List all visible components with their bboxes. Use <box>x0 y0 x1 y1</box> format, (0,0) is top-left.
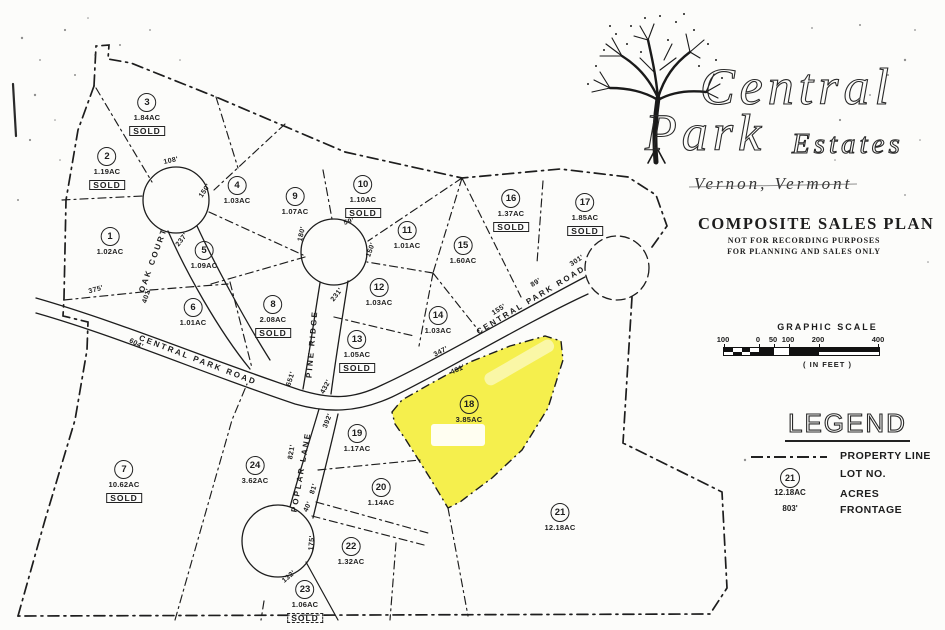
lot-acres: 1.10AC <box>345 196 381 204</box>
lot-number: 1 <box>100 227 119 246</box>
legend-label: PROPERTY LINE <box>840 450 931 462</box>
lot-acres: 3.62AC <box>242 477 269 485</box>
lot-number: 22 <box>341 537 360 556</box>
lot-sold-tag: SOLD <box>345 208 381 219</box>
scale-tick: 0 <box>756 335 760 344</box>
lot-label: 8 2.08AC SOLD <box>255 295 291 340</box>
lot-label: 1 1.02AC <box>97 227 124 256</box>
plan-title-block: COMPOSITE SALES PLAN NOT FOR RECORDING P… <box>698 214 910 256</box>
lot-number: 20 <box>371 478 390 497</box>
property-line-symbol <box>751 456 827 458</box>
lot-number: 3 <box>138 93 157 112</box>
lot-number: 23 <box>296 580 315 599</box>
lot-acres: 1.19AC <box>89 168 125 176</box>
brand-word-estates: Estates <box>792 128 904 161</box>
lot-acres: 1.03AC <box>224 197 251 205</box>
lot-number: 15 <box>453 236 472 255</box>
lot-label: 10 1.10AC SOLD <box>345 175 381 220</box>
lot-label: 9 1.07AC <box>282 187 309 216</box>
lot-lines <box>62 88 543 620</box>
lot-acres: 1.17AC <box>344 445 371 453</box>
central-park-road-culdesac <box>585 236 649 300</box>
lot-acres: 1.05AC <box>339 351 375 359</box>
lot-number: 16 <box>502 189 521 208</box>
lot-number: 10 <box>354 175 373 194</box>
plan-note-1: NOT FOR RECORDING PURPOSES <box>698 236 910 245</box>
scale-bar <box>723 347 880 356</box>
lot-acres: 1.07AC <box>282 208 309 216</box>
lot-sold-tag: SOLD <box>106 493 142 504</box>
lot-label: 14 1.03AC <box>425 306 452 335</box>
brand-word-park: Park <box>645 104 766 163</box>
lot-label: 3 1.84AC SOLD <box>129 93 165 138</box>
plan-note-2: FOR PLANNING AND SALES ONLY <box>698 247 910 256</box>
lot-acres: 1.85AC <box>567 214 603 222</box>
lot-label: 23 1.06AC SOLD <box>287 580 323 625</box>
lot-label: 16 1.37AC SOLD <box>493 189 529 234</box>
lot-acres: 1.02AC <box>97 248 124 256</box>
legend: LEGEND PROPERTY LINE 21 LOT NO. 12.18AC … <box>745 408 935 442</box>
lot-number: 14 <box>428 306 447 325</box>
whiteout-patch <box>431 424 485 446</box>
legend-row-frontage: 803' FRONTAGE <box>745 502 935 518</box>
lot-number: 8 <box>264 295 283 314</box>
lot-label: 15 1.60AC <box>450 236 477 265</box>
lot-label: 20 1.14AC <box>368 478 395 507</box>
lot-acres: 1.84AC <box>129 114 165 122</box>
lot-acres: 1.03AC <box>425 327 452 335</box>
lot-label: 12 1.03AC <box>366 278 393 307</box>
lot-number: 21 <box>550 503 569 522</box>
lot-label: 4 1.03AC <box>224 176 251 205</box>
lot-label: 19 1.17AC <box>344 424 371 453</box>
lot-acres: 1.37AC <box>493 210 529 218</box>
poplar-lane-culdesac <box>242 505 314 577</box>
scan-artifact-stroke <box>13 84 16 136</box>
scale-tick: 100 <box>717 335 730 344</box>
dimension-label: 175' <box>308 535 316 551</box>
lot-label: 13 1.05AC SOLD <box>339 330 375 375</box>
legend-row-acres: 12.18AC ACRES <box>745 486 935 502</box>
location-text: Vernon, Vermont <box>694 174 852 194</box>
lot-number: 11 <box>397 221 416 240</box>
lot-acres: 2.08AC <box>255 316 291 324</box>
lot-acres: 1.09AC <box>191 262 218 270</box>
scale-units-note: ( IN FEET ) <box>745 360 910 369</box>
acres-symbol: 12.18AC <box>745 488 835 497</box>
lot-sold-tag: SOLD <box>339 363 375 374</box>
lot-acres: 1.32AC <box>338 558 365 566</box>
lot-label: 22 1.32AC <box>338 537 365 566</box>
lot-acres: 12.18AC <box>544 524 575 532</box>
lot-label: 21 12.18AC <box>544 503 575 532</box>
frontage-symbol: 803' <box>745 504 835 513</box>
lot-label: 18 3.85AC <box>456 395 483 424</box>
lot-number: 19 <box>347 424 366 443</box>
legend-row-lot-no: 21 LOT NO. <box>745 466 935 482</box>
lot-acres: 1.14AC <box>368 499 395 507</box>
lot-sold-tag: SOLD <box>287 613 323 624</box>
lot-number: 5 <box>194 241 213 260</box>
lot-sold-tag: SOLD <box>567 226 603 237</box>
plan-title: COMPOSITE SALES PLAN <box>698 214 910 234</box>
lot-label: 11 1.01AC <box>394 221 421 250</box>
legend-label: ACRES <box>840 488 879 500</box>
lot-sold-tag: SOLD <box>129 126 165 137</box>
scale-tick: 100 <box>782 335 795 344</box>
graphic-scale-title: GRAPHIC SCALE <box>745 322 910 332</box>
lot-acres: 1.06AC <box>287 601 323 609</box>
lot-label: 24 3.62AC <box>242 456 269 485</box>
lot-sold-tag: SOLD <box>493 222 529 233</box>
legend-row-property-line: PROPERTY LINE <box>745 448 935 464</box>
graphic-scale: GRAPHIC SCALE 100 0 50 100 200 400 ( IN … <box>715 322 943 374</box>
lot-number-symbol: 21 <box>780 468 800 488</box>
boundary-west <box>18 86 94 616</box>
scale-tick: 400 <box>872 335 885 344</box>
lot-label: 2 1.19AC SOLD <box>89 147 125 192</box>
scale-tick: 50 <box>769 335 777 344</box>
oak-court-culdesac <box>143 167 209 233</box>
lot-label: 17 1.85AC SOLD <box>567 193 603 238</box>
lot-acres: 1.60AC <box>450 257 477 265</box>
lot-number: 2 <box>98 147 117 166</box>
pine-ridge-culdesac <box>301 219 367 285</box>
lot-label: 7 10.62AC SOLD <box>106 460 142 505</box>
lot-number: 13 <box>348 330 367 349</box>
lot-sold-tag: SOLD <box>255 328 291 339</box>
lot-number: 7 <box>115 460 134 479</box>
scale-tick: 200 <box>812 335 825 344</box>
lot-number: 18 <box>459 395 478 414</box>
lot-number: 24 <box>245 456 264 475</box>
legend-label: LOT NO. <box>840 468 886 480</box>
legend-label: FRONTAGE <box>840 504 902 516</box>
lot-acres: 10.62AC <box>106 481 142 489</box>
lot-label: 5 1.09AC <box>191 241 218 270</box>
lot-acres: 1.01AC <box>394 242 421 250</box>
lot-label: 6 1.01AC <box>180 298 207 327</box>
lot-number: 9 <box>285 187 304 206</box>
lot-acres: 1.03AC <box>366 299 393 307</box>
lot-number: 12 <box>369 278 388 297</box>
lot-acres: 1.01AC <box>180 319 207 327</box>
lot-number: 6 <box>183 298 202 317</box>
lot-sold-tag: SOLD <box>89 180 125 191</box>
lot-acres: 3.85AC <box>456 416 483 424</box>
lot-number: 4 <box>227 176 246 195</box>
legend-title: LEGEND <box>785 408 910 442</box>
lot-number: 17 <box>576 193 595 212</box>
